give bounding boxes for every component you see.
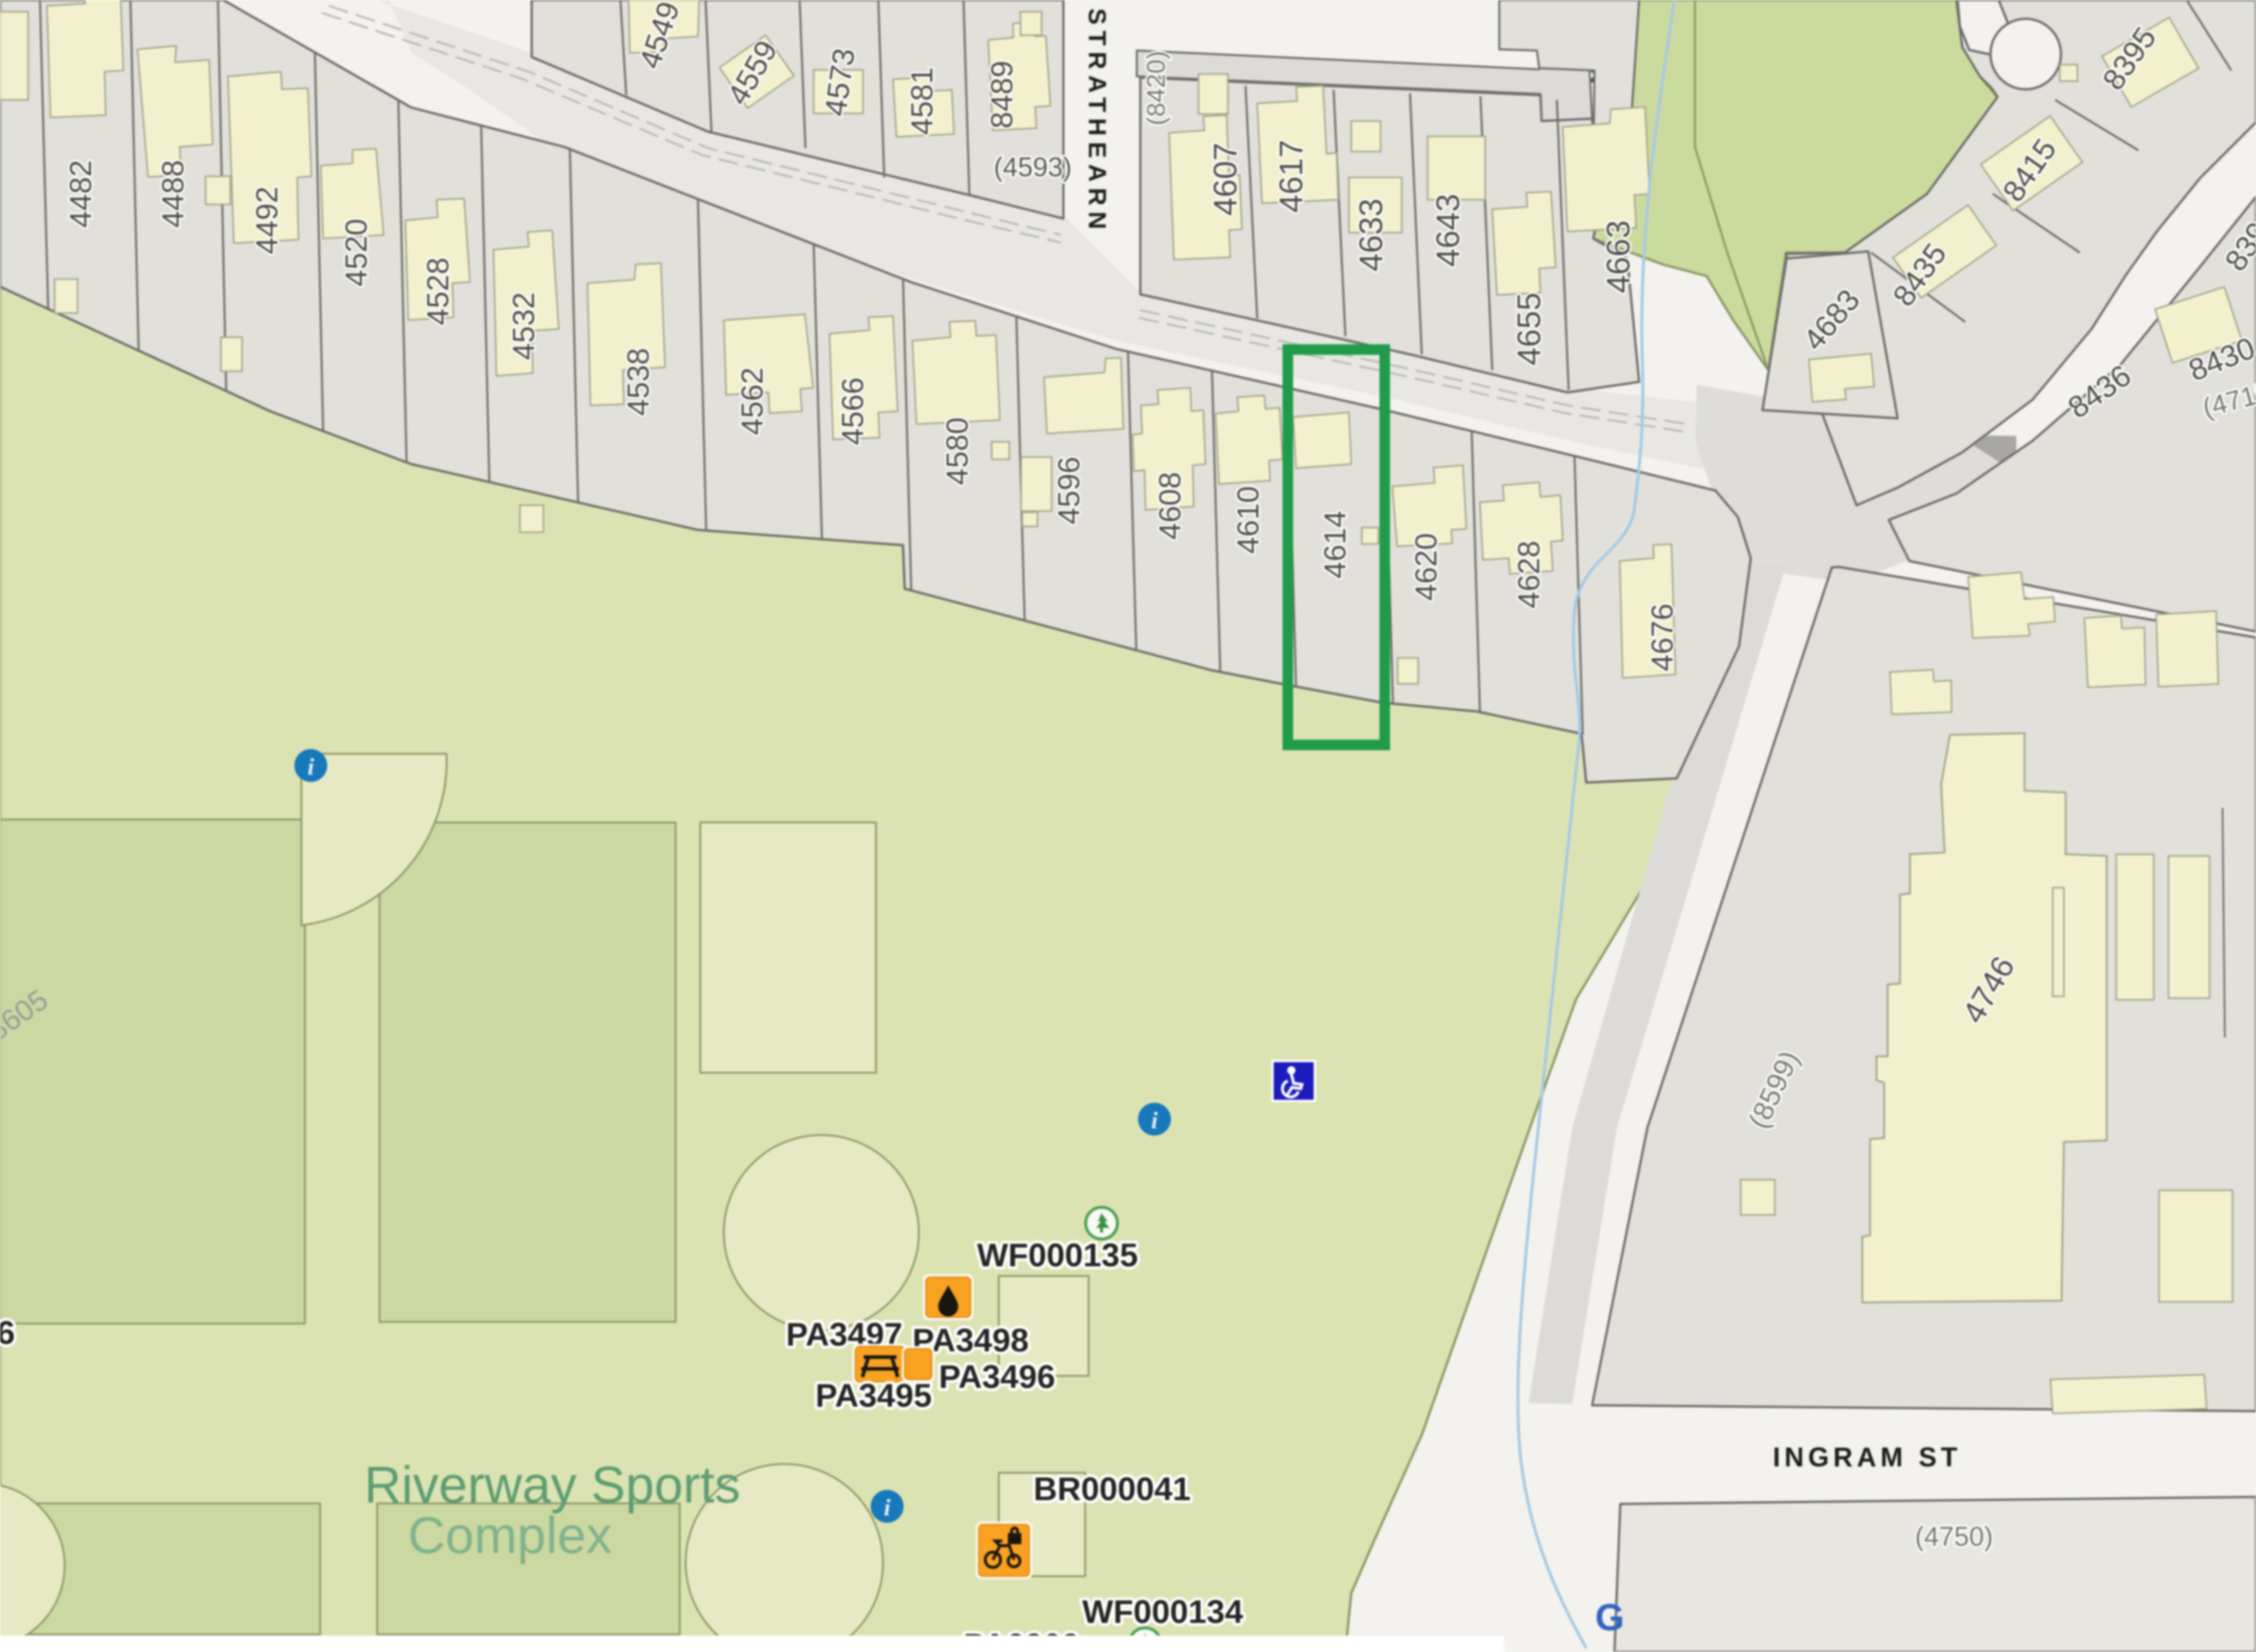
svg-text:PA3496: PA3496	[939, 1358, 1055, 1395]
svg-text:STRATHEARN: STRATHEARN	[1084, 8, 1112, 235]
svg-text:4520: 4520	[340, 219, 374, 287]
svg-text:4610: 4610	[1231, 486, 1265, 554]
svg-text:WF000134: WF000134	[1082, 1593, 1243, 1630]
svg-text:4655: 4655	[1510, 293, 1547, 366]
svg-text:(4750): (4750)	[1915, 1521, 1993, 1552]
svg-text:4482: 4482	[64, 160, 98, 228]
svg-text:4528: 4528	[421, 257, 455, 325]
svg-text:Complex: Complex	[408, 1506, 612, 1564]
svg-text:G: G	[1595, 1596, 1624, 1638]
svg-text:6: 6	[0, 1314, 15, 1351]
svg-text:(4593): (4593)	[994, 152, 1072, 182]
svg-text:BR000041: BR000041	[1033, 1470, 1191, 1507]
svg-text:4492: 4492	[250, 186, 284, 254]
svg-text:4633: 4633	[1352, 199, 1389, 272]
svg-text:4676: 4676	[1646, 603, 1680, 671]
svg-text:4614: 4614	[1318, 511, 1352, 579]
svg-text:Riverway Sports: Riverway Sports	[364, 1456, 741, 1514]
svg-text:i: i	[884, 1495, 890, 1521]
svg-text:4620: 4620	[1409, 533, 1443, 601]
svg-text:4608: 4608	[1153, 472, 1187, 540]
svg-text:4532: 4532	[507, 292, 541, 360]
svg-text:4566: 4566	[836, 377, 870, 445]
svg-text:(8420): (8420)	[1142, 51, 1171, 125]
svg-text:4628: 4628	[1512, 540, 1546, 609]
svg-text:4643: 4643	[1429, 194, 1466, 267]
svg-text:INGRAM ST: INGRAM ST	[1772, 1442, 1961, 1472]
svg-text:4581: 4581	[905, 67, 939, 135]
svg-text:4663: 4663	[1600, 220, 1637, 294]
svg-text:8489: 8489	[985, 61, 1019, 129]
svg-text:4488: 4488	[156, 160, 190, 228]
svg-text:PA3495: PA3495	[815, 1377, 932, 1414]
svg-text:4617: 4617	[1273, 140, 1310, 213]
svg-text:4607: 4607	[1207, 143, 1244, 216]
svg-text:i: i	[307, 754, 314, 780]
svg-text:4538: 4538	[622, 348, 656, 416]
svg-text:4562: 4562	[736, 367, 770, 435]
svg-text:WF000135: WF000135	[977, 1237, 1138, 1274]
svg-text:4580: 4580	[941, 417, 975, 485]
svg-text:4596: 4596	[1052, 456, 1086, 525]
svg-text:i: i	[1151, 1107, 1157, 1134]
